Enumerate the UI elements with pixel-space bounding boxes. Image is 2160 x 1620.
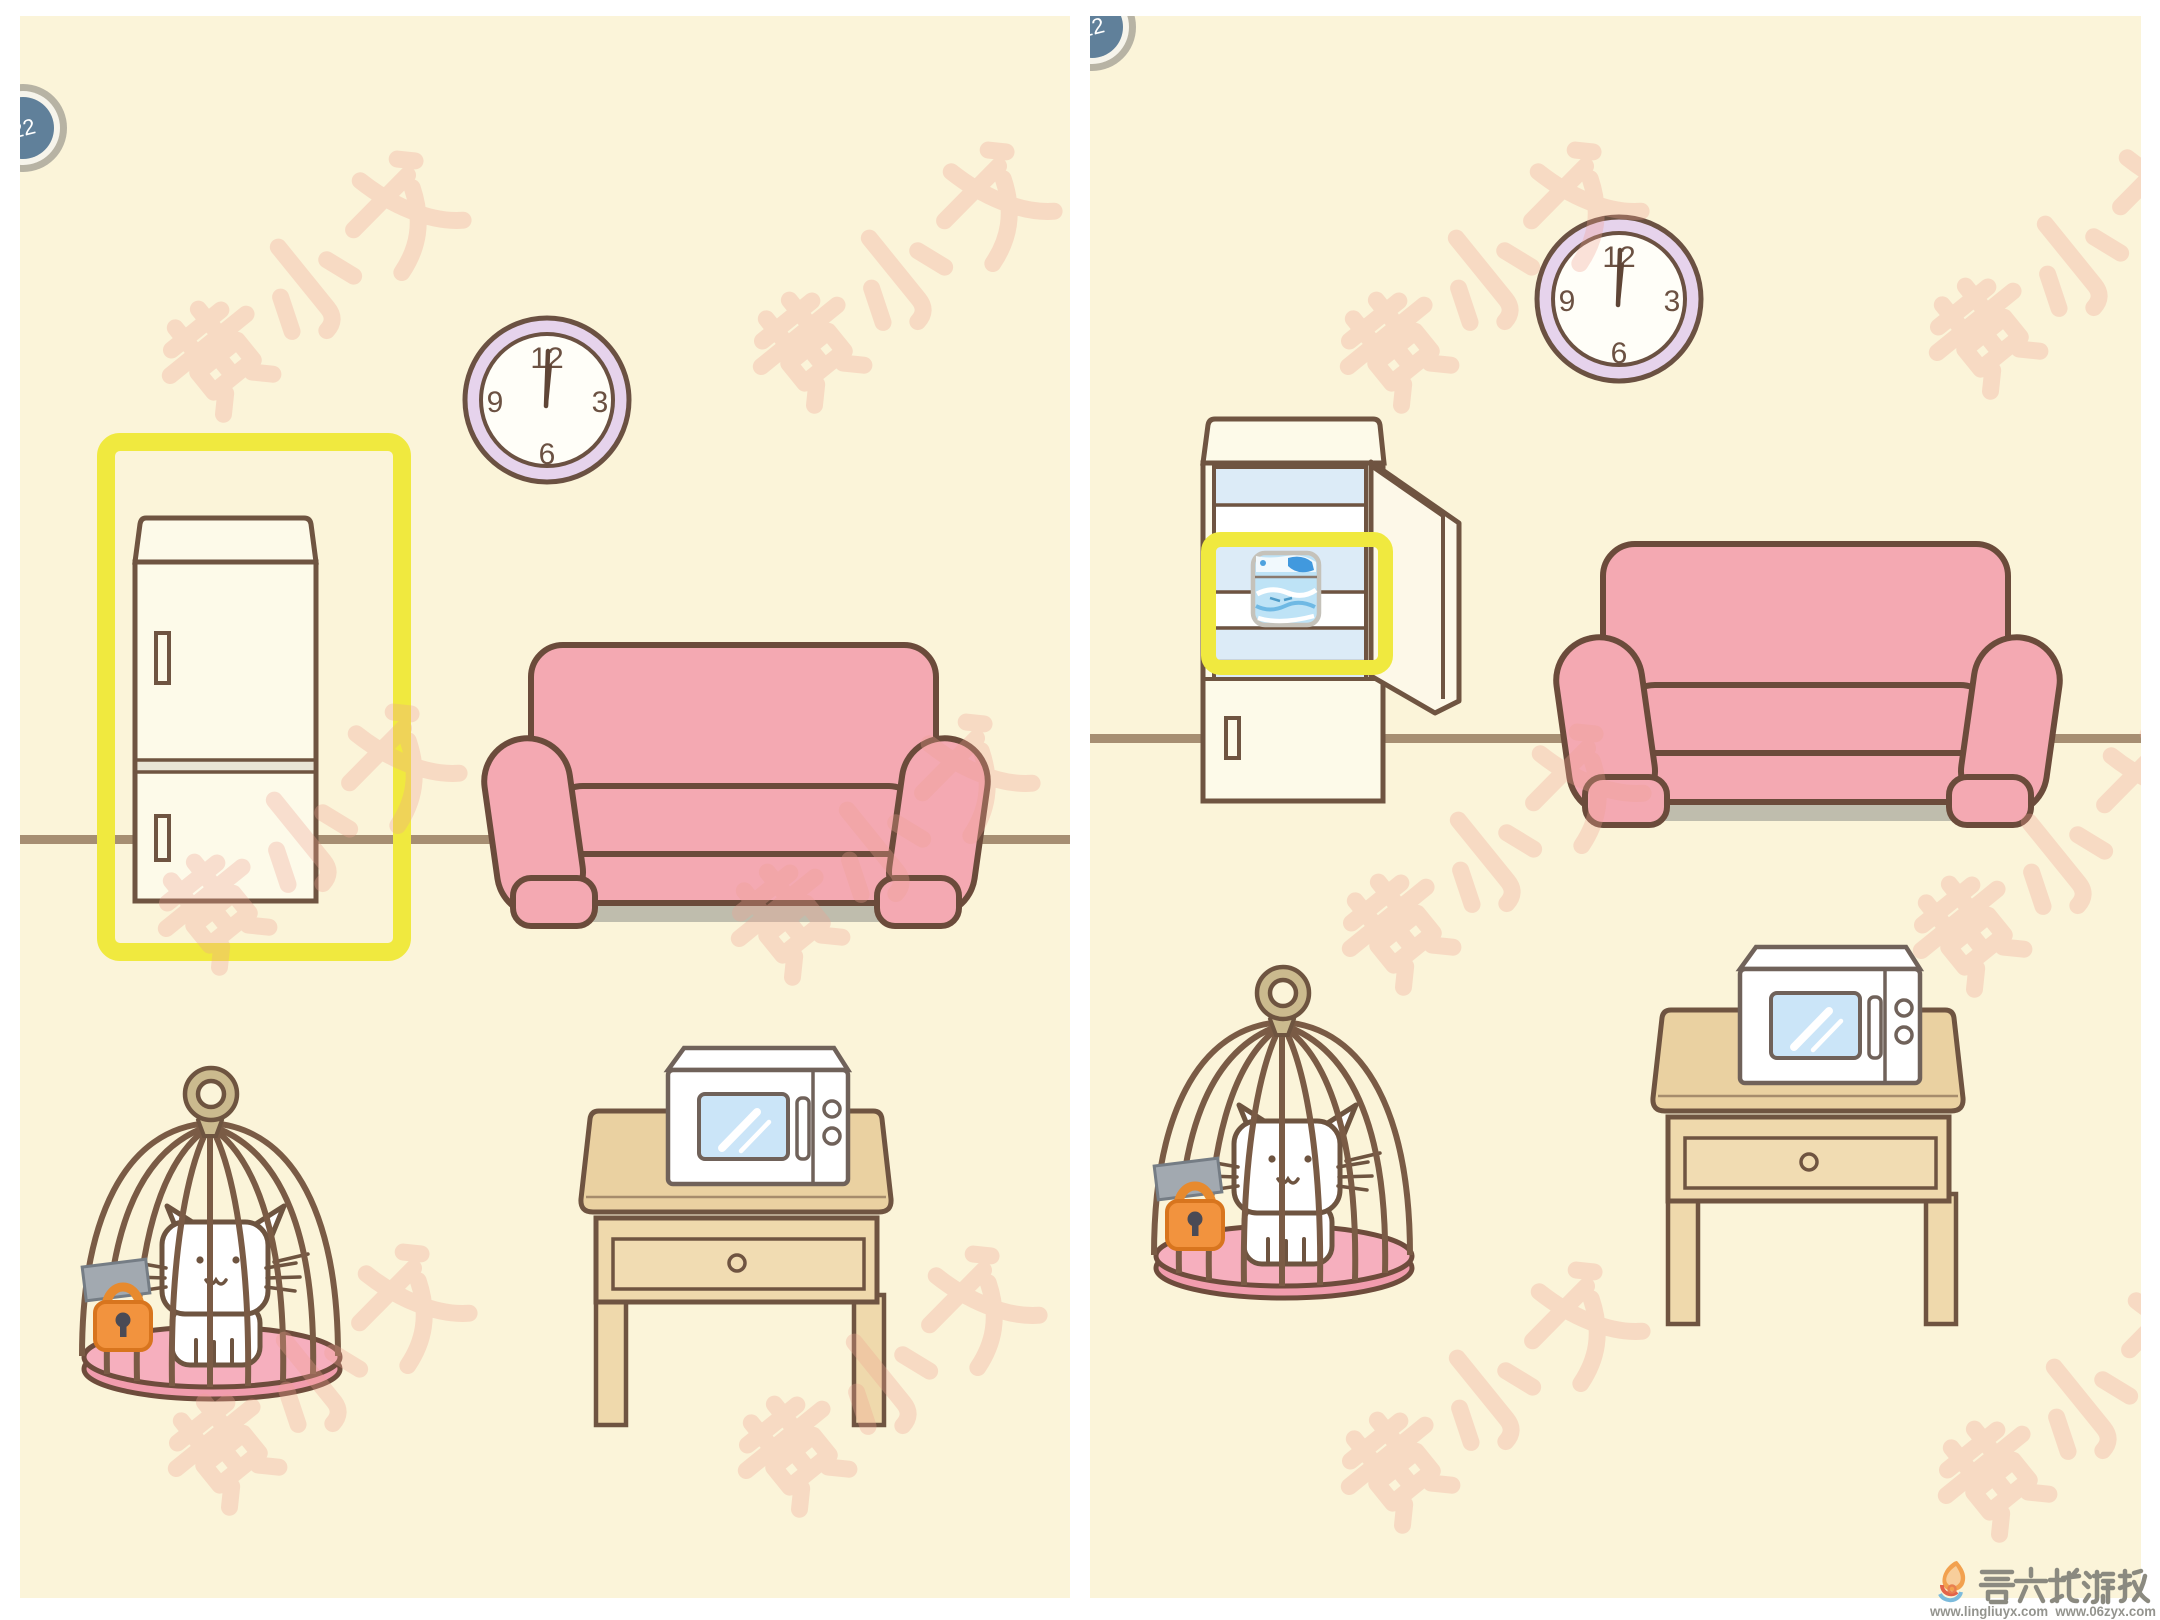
- svg-text:www.lingliuyx.com www.06zyx.c: www.lingliuyx.com www.06zyx.com: [1929, 1603, 2156, 1619]
